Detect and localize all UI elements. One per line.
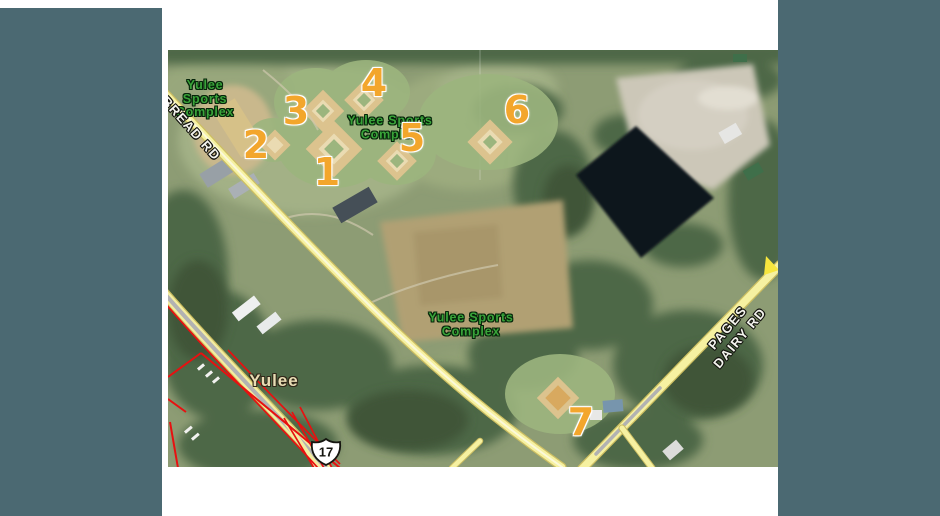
satellite-map[interactable]: YuleeSportsComplexYulee SportsComplexYul… [168, 50, 778, 467]
right-panel [778, 0, 940, 516]
map-terrain [168, 50, 778, 467]
left-panel [0, 8, 162, 516]
